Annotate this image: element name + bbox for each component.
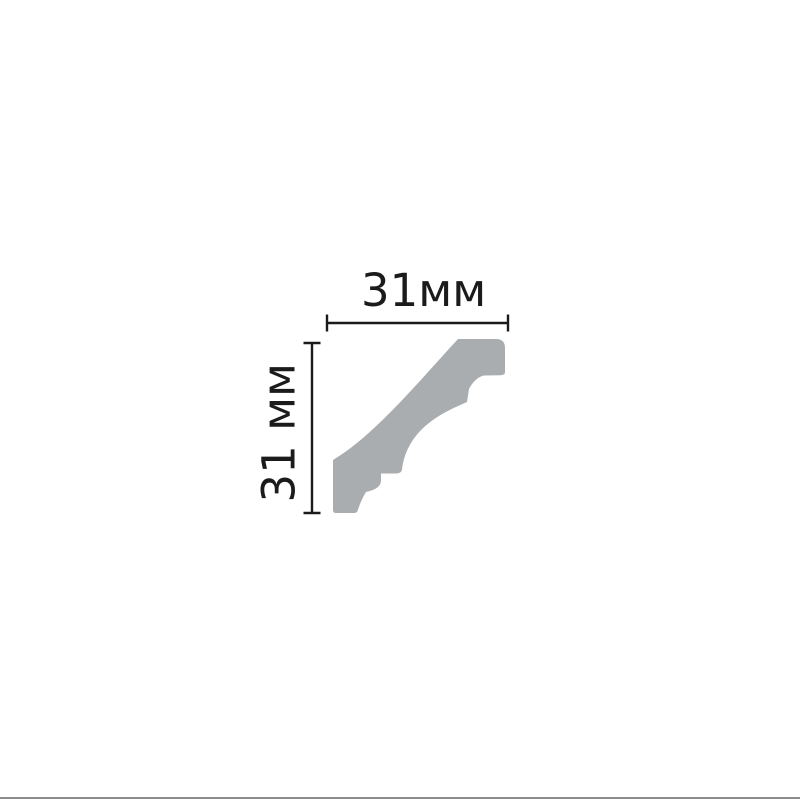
molding-dimension-diagram: 31мм 31 мм [0,0,800,800]
width-dimension-label: 31мм [361,268,481,313]
molding-profile-shape [333,339,505,513]
molding-profile-svg [0,0,800,800]
height-dimension-label: 31 мм [262,370,298,503]
bottom-border-line [0,797,800,799]
